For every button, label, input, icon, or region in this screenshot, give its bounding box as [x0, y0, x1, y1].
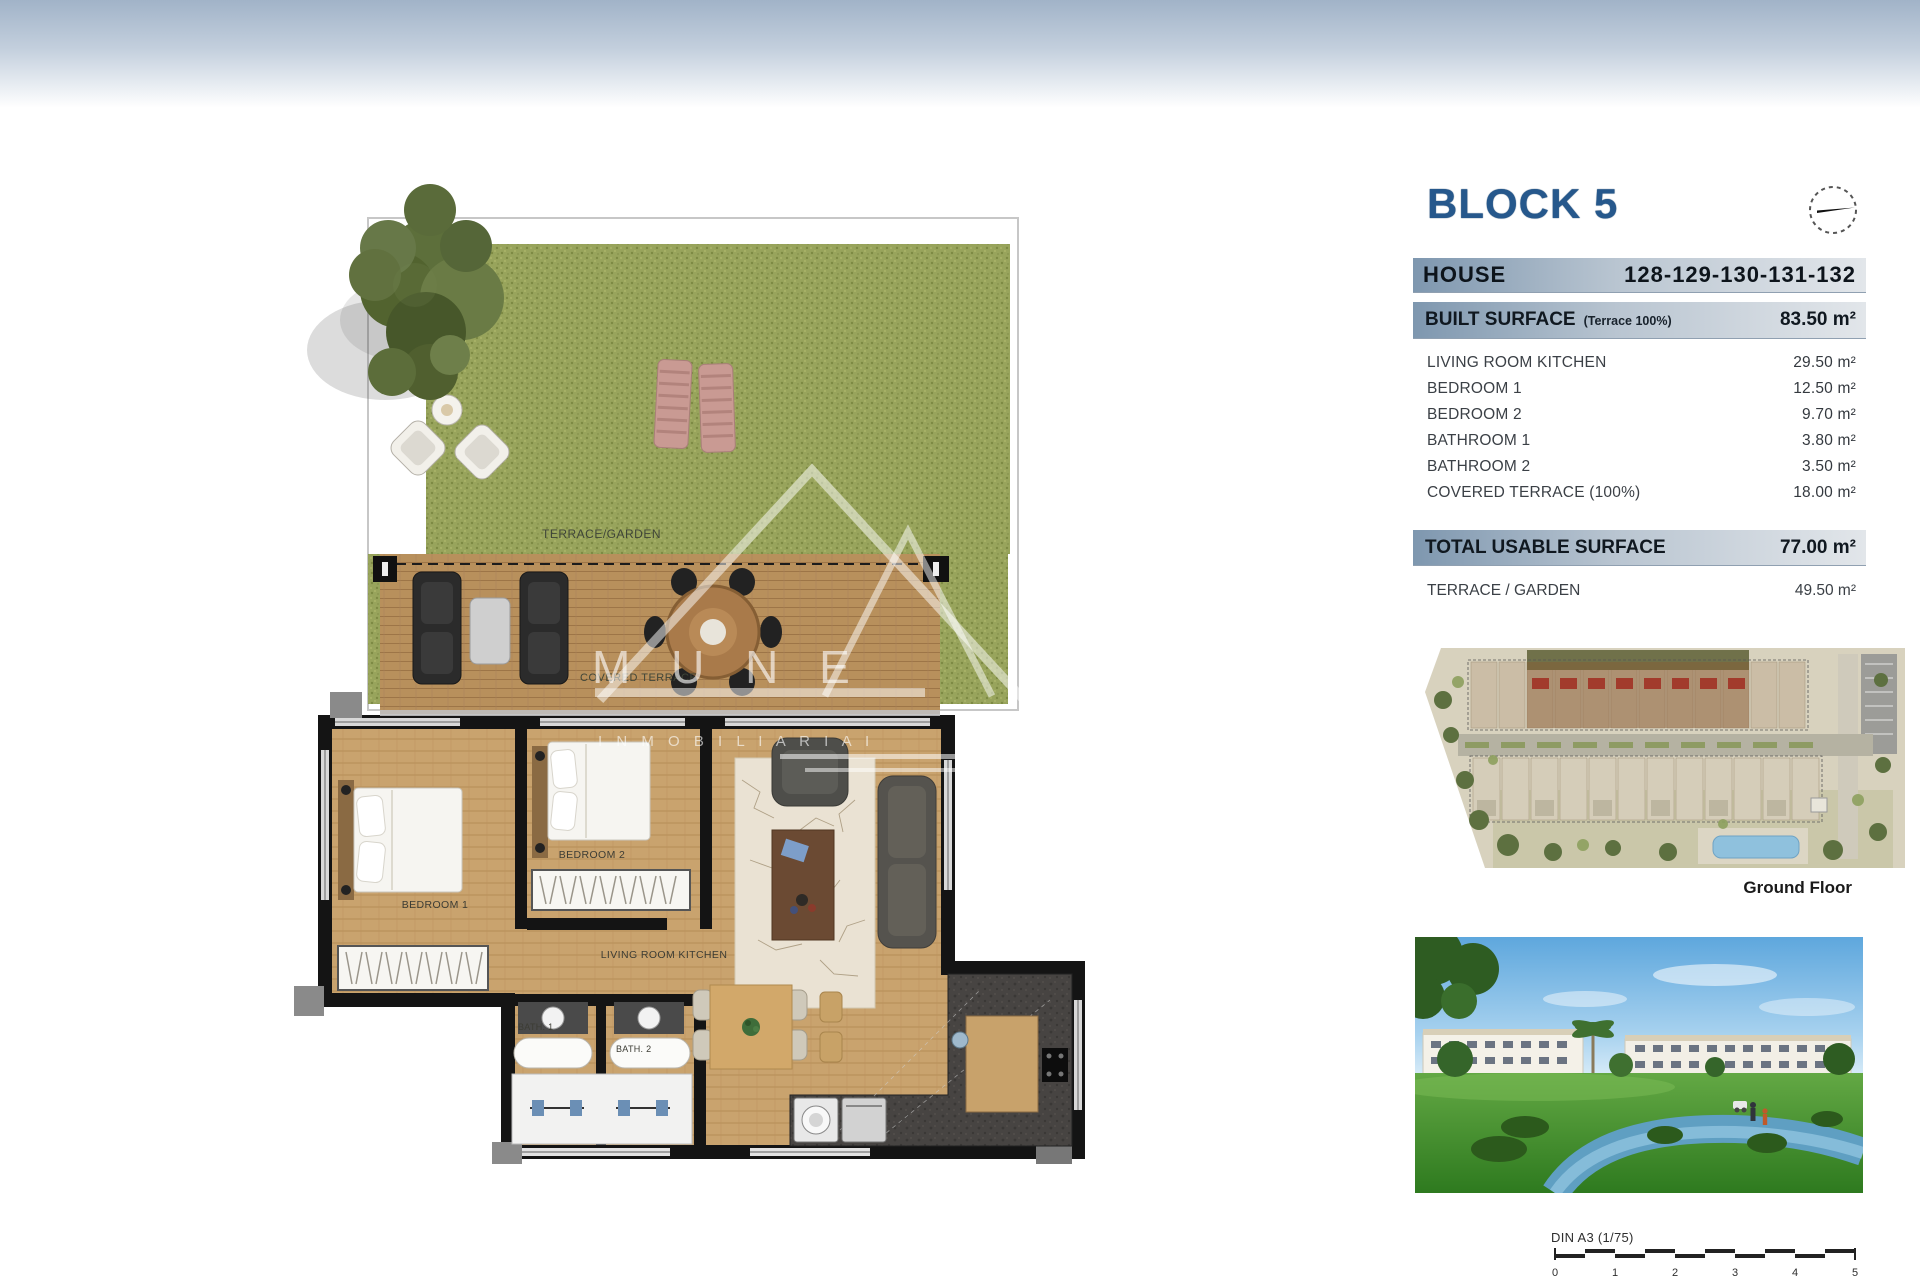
brochure-page: { "header": { "title": "BLOCK 5" }, "hou…: [0, 0, 1920, 1280]
floor-plan: TERRACE/GARDEN COVERED TERRACE: [280, 140, 1120, 1200]
scale-tick: 2: [1672, 1267, 1678, 1279]
deck-post-right-slit: [933, 562, 939, 576]
row-value: 12.50 m²: [1793, 380, 1856, 398]
table-row: LIVING ROOM KITCHEN 29.50 m²: [1413, 350, 1866, 376]
built-surface-value: 83.50 m²: [1780, 309, 1856, 331]
row-value: 18.00 m²: [1793, 484, 1856, 502]
watermark-line1: M U N E: [592, 641, 864, 693]
site-plan: [1413, 640, 1910, 876]
row-value: 29.50 m²: [1793, 354, 1856, 372]
row-label: LIVING ROOM KITCHEN: [1427, 354, 1606, 372]
row-label: COVERED TERRACE (100%): [1427, 484, 1640, 502]
page-title: BLOCK 5: [1427, 180, 1618, 228]
sofa-cushion: [528, 582, 560, 624]
wall-bed2-bottom: [527, 918, 667, 930]
row-label: BATHROOM 2: [1427, 458, 1530, 476]
total-surface-bar: TOTAL USABLE SURFACE 77.00 m²: [1413, 530, 1866, 566]
table-row: BATHROOM 2 3.50 m²: [1413, 454, 1866, 480]
bath1-label: BATH. 1: [518, 1022, 553, 1032]
row-label: BATHROOM 1: [1427, 432, 1530, 450]
bedroom1-label: BEDROOM 1: [402, 899, 469, 911]
scale-bar-graphic: [1551, 1246, 1861, 1262]
row-value: 3.80 m²: [1802, 432, 1856, 450]
house-bar: HOUSE 128-129-130-131-132: [1413, 258, 1866, 293]
column: [492, 1142, 522, 1164]
info-panel: BLOCK 5 HOUSE 128-129-130-131-132 BUILT …: [1413, 150, 1910, 1270]
watermark-line2: I N M O B I L I A R I A I: [598, 733, 874, 750]
scale-ticks: 0 1 2 3 4 5: [1551, 1267, 1863, 1281]
terrace-garden-row: TERRACE / GARDEN 49.50 m²: [1413, 582, 1866, 600]
house-numbers: 128-129-130-131-132: [1624, 262, 1856, 288]
wall-bed1-bed2: [515, 729, 527, 929]
floor-plan-drawing: TERRACE/GARDEN COVERED TERRACE: [280, 140, 1120, 1200]
scale-tick: 0: [1552, 1267, 1558, 1279]
scale-tick: 4: [1792, 1267, 1798, 1279]
built-surface-bar: BUILT SURFACE (Terrace 100%) 83.50 m²: [1413, 302, 1866, 339]
wall-bed2-living: [700, 729, 712, 929]
sofa-cushion: [421, 632, 453, 674]
row-label: BEDROOM 2: [1427, 406, 1522, 424]
scale-tick: 1: [1612, 1267, 1618, 1279]
scale-label: DIN A3 (1/75): [1551, 1230, 1863, 1245]
bedroom2-label: BEDROOM 2: [559, 849, 626, 861]
top-gradient-banner: [0, 0, 1920, 108]
table-row: COVERED TERRACE (100%) 18.00 m²: [1413, 480, 1866, 506]
property-photo: [1415, 937, 1863, 1193]
scale-bar: DIN A3 (1/75) 0 1 2 3 4 5: [1551, 1230, 1863, 1281]
siteplan-top-row: [1468, 650, 1808, 730]
deck-post-left-slit: [382, 562, 388, 576]
grass-strip-right: [940, 554, 1008, 704]
scale-tick: 5: [1852, 1267, 1858, 1279]
terrace-garden-label: TERRACE/GARDEN: [542, 527, 661, 541]
row-label: TERRACE / GARDEN: [1427, 582, 1580, 600]
house-label: HOUSE: [1423, 262, 1506, 288]
row-value: 9.70 m²: [1802, 406, 1856, 424]
sofa-cushion: [528, 632, 560, 674]
built-surface-label: BUILT SURFACE: [1425, 309, 1576, 331]
row-value: 49.50 m²: [1795, 582, 1856, 600]
wall-bath-right: [694, 1000, 706, 1148]
table-row: BATHROOM 1 3.80 m²: [1413, 428, 1866, 454]
total-surface-label: TOTAL USABLE SURFACE: [1425, 537, 1666, 559]
row-value: 3.50 m²: [1802, 458, 1856, 476]
outdoor-ottoman: [470, 598, 510, 664]
surface-rows: LIVING ROOM KITCHEN 29.50 m² BEDROOM 1 1…: [1413, 350, 1866, 506]
compass-icon: [1805, 182, 1861, 238]
terrace-door-track: [380, 710, 940, 716]
row-label: BEDROOM 1: [1427, 380, 1522, 398]
table-row: BEDROOM 1 12.50 m²: [1413, 376, 1866, 402]
living-room-label: LIVING ROOM KITCHEN: [601, 949, 728, 961]
site-plan-caption: Ground Floor: [1743, 878, 1852, 898]
scale-tick: 3: [1732, 1267, 1738, 1279]
column: [330, 692, 362, 718]
total-surface-value: 77.00 m²: [1780, 537, 1856, 559]
column: [294, 986, 324, 1016]
bath2-label: BATH. 2: [616, 1044, 651, 1054]
table-row: BEDROOM 2 9.70 m²: [1413, 402, 1866, 428]
sofa-cushion: [421, 582, 453, 624]
built-surface-note: (Terrace 100%): [1584, 314, 1672, 328]
